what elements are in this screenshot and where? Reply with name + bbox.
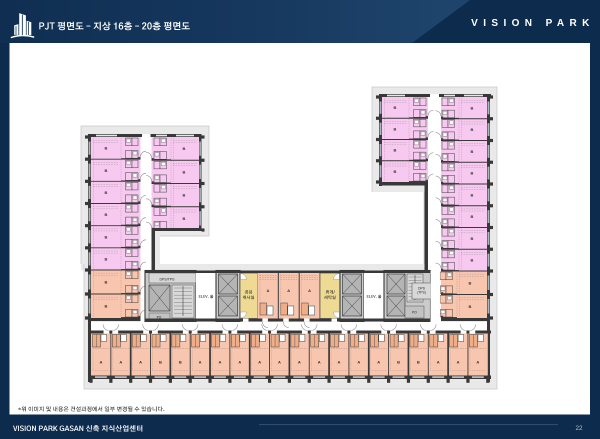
svg-text:A: A — [476, 360, 479, 365]
svg-text:B: B — [105, 212, 108, 217]
svg-text:B: B — [105, 168, 108, 173]
svg-text:B: B — [471, 192, 474, 197]
svg-text:A: A — [99, 360, 102, 365]
svg-text:B: B — [471, 258, 474, 263]
svg-text:A: A — [298, 360, 301, 365]
svg-text:B: B — [159, 360, 162, 365]
svg-text:A: A — [278, 360, 281, 365]
svg-text:B: B — [179, 360, 182, 365]
svg-text:VISION PARK: VISION PARK — [471, 18, 595, 29]
svg-text:(TPS): (TPS) — [417, 291, 426, 295]
svg-text:B: B — [105, 257, 108, 262]
svg-text:A: A — [266, 288, 269, 293]
svg-text:B: B — [471, 149, 474, 154]
svg-text:B: B — [394, 126, 397, 131]
svg-text:B: B — [471, 105, 474, 110]
svg-text:B: B — [105, 190, 108, 195]
svg-text:B: B — [394, 105, 397, 110]
svg-text:B: B — [394, 169, 397, 174]
svg-text:A: A — [219, 360, 222, 365]
svg-text:B: B — [471, 214, 474, 219]
svg-text:A: A — [287, 288, 290, 293]
svg-text:A: A — [457, 360, 460, 365]
svg-text:B: B — [183, 216, 186, 221]
svg-text:B: B — [417, 360, 420, 365]
svg-text:A: A — [377, 360, 380, 365]
svg-text:A: A — [199, 360, 202, 365]
svg-text:22: 22 — [575, 425, 583, 432]
svg-text:B: B — [471, 127, 474, 132]
svg-text:B: B — [183, 146, 186, 151]
svg-text:B: B — [469, 304, 472, 309]
svg-text:A: A — [258, 360, 261, 365]
svg-text:DPS/TPS: DPS/TPS — [160, 278, 176, 282]
svg-text:B: B — [183, 193, 186, 198]
svg-text:A: A — [238, 360, 241, 365]
svg-text:A: A — [357, 360, 360, 365]
svg-text:B: B — [397, 360, 400, 365]
svg-text:B: B — [105, 146, 108, 151]
svg-text:B: B — [469, 280, 472, 285]
svg-text:B: B — [105, 280, 108, 285]
svg-text:A: A — [308, 288, 311, 293]
svg-text:A: A — [318, 360, 321, 365]
svg-text:B: B — [471, 171, 474, 176]
svg-text:B: B — [105, 304, 108, 309]
svg-text:B: B — [471, 236, 474, 241]
svg-text:A: A — [119, 360, 122, 365]
svg-text:A: A — [437, 360, 440, 365]
svg-text:A: A — [338, 360, 341, 365]
svg-text:B: B — [183, 169, 186, 174]
svg-text:B: B — [105, 234, 108, 239]
svg-text:A: A — [139, 360, 142, 365]
svg-text:B: B — [394, 148, 397, 153]
svg-text:PO: PO — [412, 311, 417, 315]
